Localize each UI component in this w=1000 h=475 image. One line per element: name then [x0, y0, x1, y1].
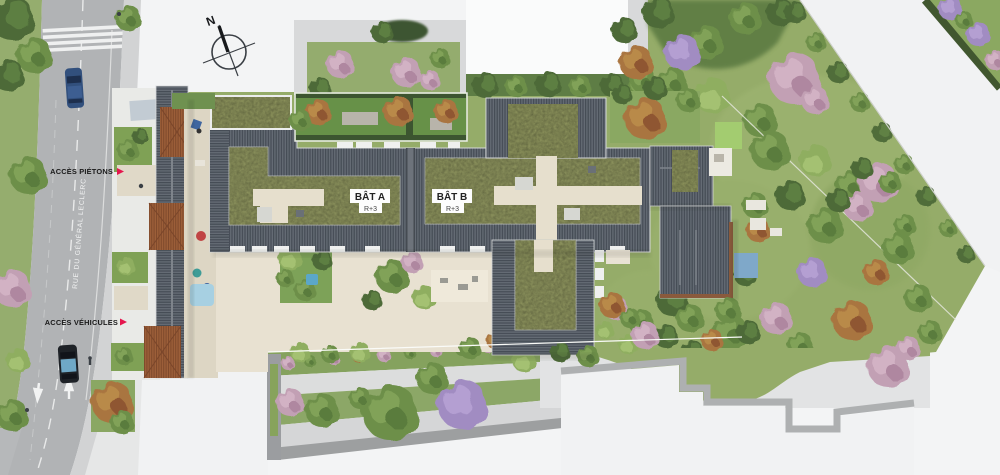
svg-text:BÂT B: BÂT B: [437, 190, 468, 203]
svg-text:R+3: R+3: [446, 206, 459, 213]
svg-text:R+3: R+3: [364, 206, 377, 213]
svg-text:ACCÈS VÉHICULES: ACCÈS VÉHICULES: [45, 318, 118, 327]
svg-text:BÂT A: BÂT A: [355, 190, 385, 203]
svg-text:ACCÈS PIÉTONS: ACCÈS PIÉTONS: [50, 167, 113, 176]
